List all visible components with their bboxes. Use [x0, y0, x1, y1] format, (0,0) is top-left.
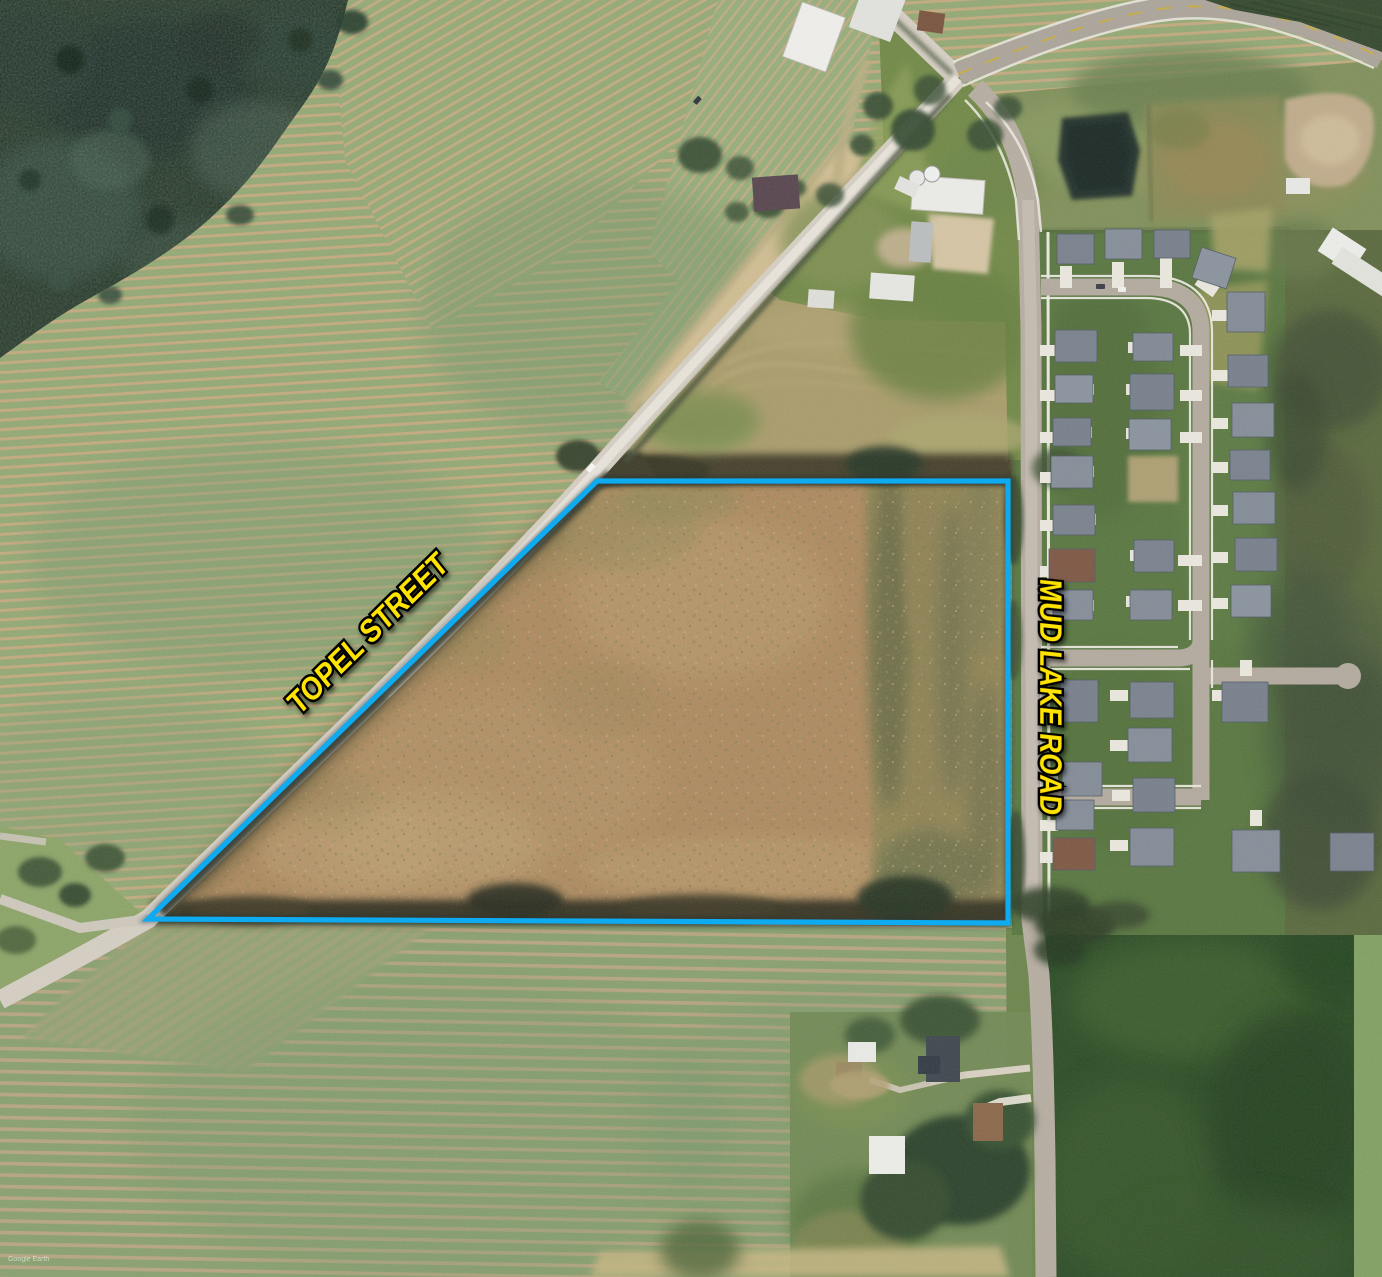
svg-text:Google Earth: Google Earth [8, 1256, 49, 1263]
svg-text:MUD LAKE ROAD: MUD LAKE ROAD [1033, 577, 1069, 817]
